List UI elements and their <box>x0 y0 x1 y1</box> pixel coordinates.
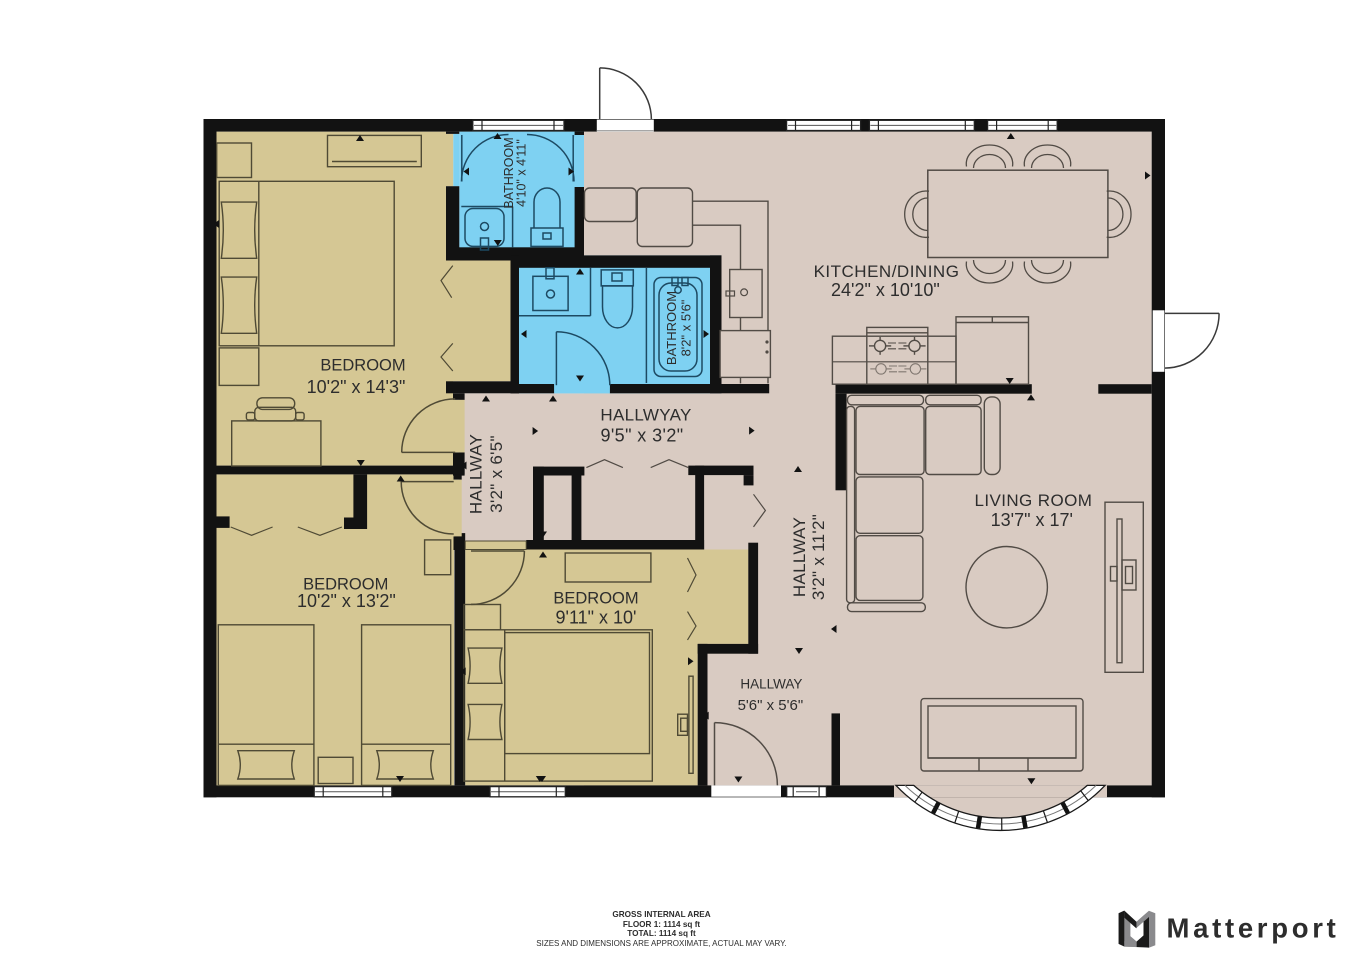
svg-text:SIZES AND DIMENSIONS ARE APPRO: SIZES AND DIMENSIONS ARE APPROXIMATE, AC… <box>536 939 786 948</box>
svg-text:HALLWYAY: HALLWYAY <box>600 406 691 425</box>
svg-text:3'2" x 11'2": 3'2" x 11'2" <box>809 514 828 600</box>
svg-text:HALLWAY: HALLWAY <box>467 434 486 514</box>
svg-text:3'2" x 6'5": 3'2" x 6'5" <box>487 435 506 513</box>
svg-text:FLOOR 1: 1114 sq ft: FLOOR 1: 1114 sq ft <box>623 920 701 929</box>
svg-text:HALLWAY: HALLWAY <box>790 517 809 597</box>
svg-text:LIVING ROOM: LIVING ROOM <box>975 491 1093 510</box>
svg-text:8'2" x 5'6": 8'2" x 5'6" <box>679 299 694 356</box>
svg-text:10'2" x 14'3": 10'2" x 14'3" <box>307 377 406 397</box>
svg-text:13'7" x 17': 13'7" x 17' <box>991 510 1073 530</box>
svg-text:9'5" x 3'2": 9'5" x 3'2" <box>600 426 683 446</box>
svg-text:10'2" x 13'2": 10'2" x 13'2" <box>297 591 396 611</box>
svg-text:TOTAL: 1114 sq ft: TOTAL: 1114 sq ft <box>627 929 696 938</box>
svg-text:Matterport: Matterport <box>1167 913 1340 944</box>
svg-text:BATHROOM: BATHROOM <box>664 291 679 365</box>
svg-text:4'10" x 4'11": 4'10" x 4'11" <box>514 139 528 207</box>
svg-text:BEDROOM: BEDROOM <box>320 357 405 375</box>
svg-text:5'6" x 5'6": 5'6" x 5'6" <box>738 697 804 714</box>
svg-text:24'2" x 10'10": 24'2" x 10'10" <box>831 280 940 300</box>
svg-text:GROSS INTERNAL AREA: GROSS INTERNAL AREA <box>612 910 710 919</box>
svg-text:9'11" x 10': 9'11" x 10' <box>556 608 637 628</box>
svg-text:HALLWAY: HALLWAY <box>740 677 802 692</box>
svg-text:KITCHEN/DINING: KITCHEN/DINING <box>814 262 960 281</box>
svg-text:BEDROOM: BEDROOM <box>553 590 638 608</box>
